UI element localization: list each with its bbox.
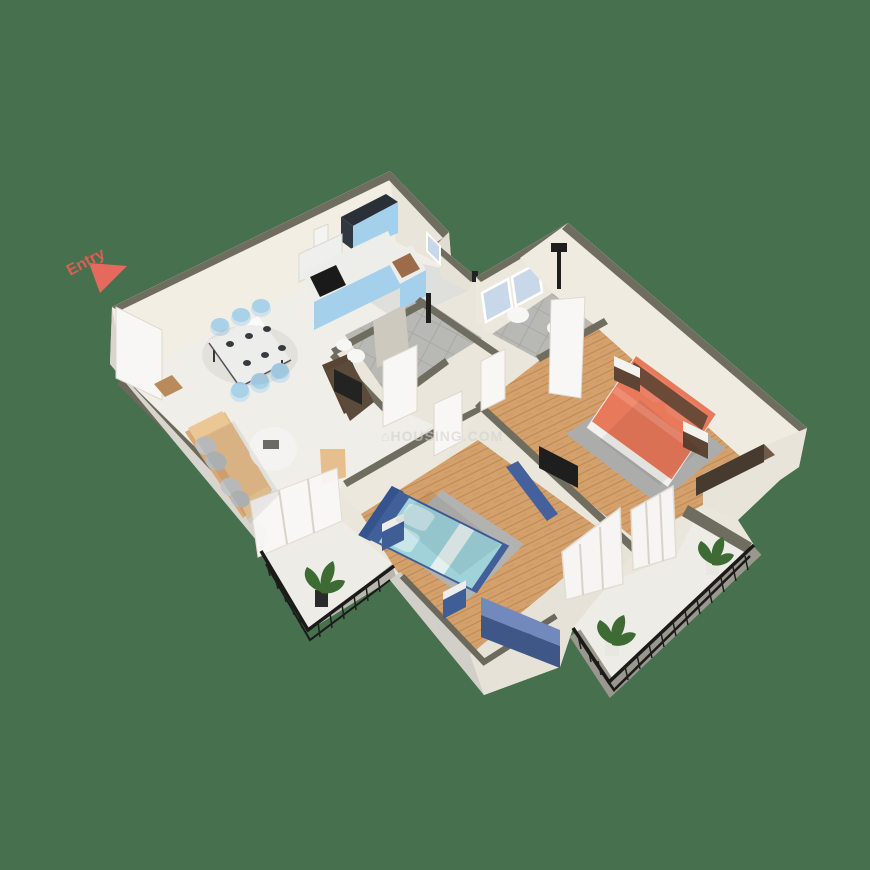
svg-text:⌂HOUSING.COM: ⌂HOUSING.COM [381, 428, 503, 444]
